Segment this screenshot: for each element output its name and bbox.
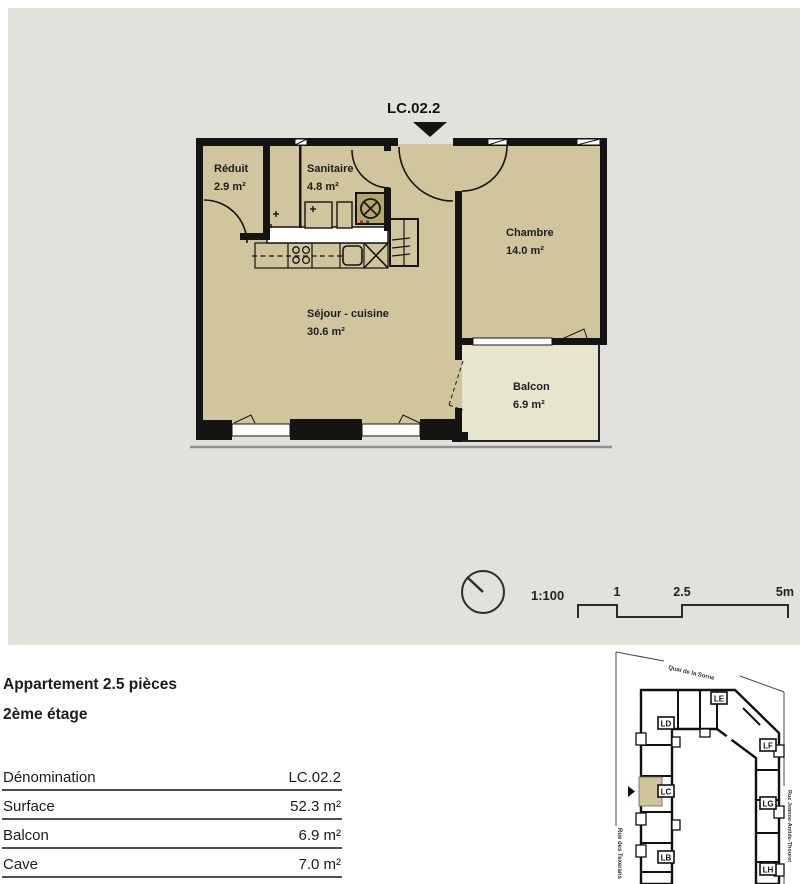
scale-ratio-label: 1:100 — [531, 588, 564, 603]
row-value: 6.9 m² — [298, 827, 341, 844]
window-living-right — [362, 424, 420, 436]
floor-plan-drawing — [190, 130, 615, 455]
washbasin-icon — [305, 202, 332, 228]
row-value: 7.0 m² — [298, 856, 341, 873]
table-row-surface: Surface 52.3 m² — [2, 791, 342, 820]
street-label-left: Rue des Texerans — [616, 828, 622, 880]
room-label-sejour: Séjour - cuisine30.6 m² — [307, 305, 389, 341]
street-label-right: Rue Jeanne-Antide-Thouret — [786, 790, 792, 862]
info-table: Dénomination LC.02.2 Surface 52.3 m² Bal… — [2, 762, 342, 878]
fridge-icon — [390, 219, 418, 266]
street-label-top: Quai de la Sorne — [668, 665, 716, 682]
unit-pointer-icon — [628, 786, 635, 797]
north-arrow-icon — [455, 565, 515, 625]
unit-label-lg: LG — [762, 800, 773, 809]
window-bedroom — [473, 338, 552, 345]
site-plan: LE LD LF LC LG LB LH Quai de la Sorne Ru… — [598, 645, 800, 884]
scale-bar — [570, 595, 800, 630]
row-label: Balcon — [3, 827, 49, 844]
table-row-denomination: Dénomination LC.02.2 — [2, 762, 342, 791]
unit-label-le: LE — [714, 695, 725, 704]
toilet-icon — [337, 202, 352, 228]
row-value: LC.02.2 — [288, 769, 341, 786]
table-row-cave: Cave 7.0 m² — [2, 849, 342, 878]
table-row-balcon: Balcon 6.9 m² — [2, 820, 342, 849]
unit-label-ld: LD — [661, 720, 672, 729]
unit-label-lc: LC — [661, 788, 672, 797]
unit-label-lb: LB — [661, 854, 672, 863]
window-living-left — [232, 424, 290, 436]
row-label: Surface — [3, 798, 55, 815]
worktop — [267, 227, 388, 243]
row-value: 52.3 m² — [290, 798, 341, 815]
floor-plan-sheet: LC.02.2 — [0, 0, 800, 884]
apartment-title: Appartement 2.5 pièces — [3, 676, 177, 694]
apartment-code-label: LC.02.2 — [387, 100, 440, 117]
washing-machine-icon — [356, 193, 385, 224]
room-label-balcon: Balcon6.9 m² — [513, 378, 550, 414]
room-label-sanitaire: Sanitaire4.8 m² — [307, 160, 353, 196]
room-label-reduit: Réduit2.9 m² — [214, 160, 248, 196]
unit-label-lf: LF — [763, 742, 773, 751]
apartment-floor: 2ème étage — [3, 706, 87, 724]
row-label: Dénomination — [3, 769, 96, 786]
unit-label-lh: LH — [763, 866, 774, 875]
row-label: Cave — [3, 856, 38, 873]
kitchen-counter — [252, 219, 418, 268]
room-label-chambre: Chambre14.0 m² — [506, 224, 554, 260]
